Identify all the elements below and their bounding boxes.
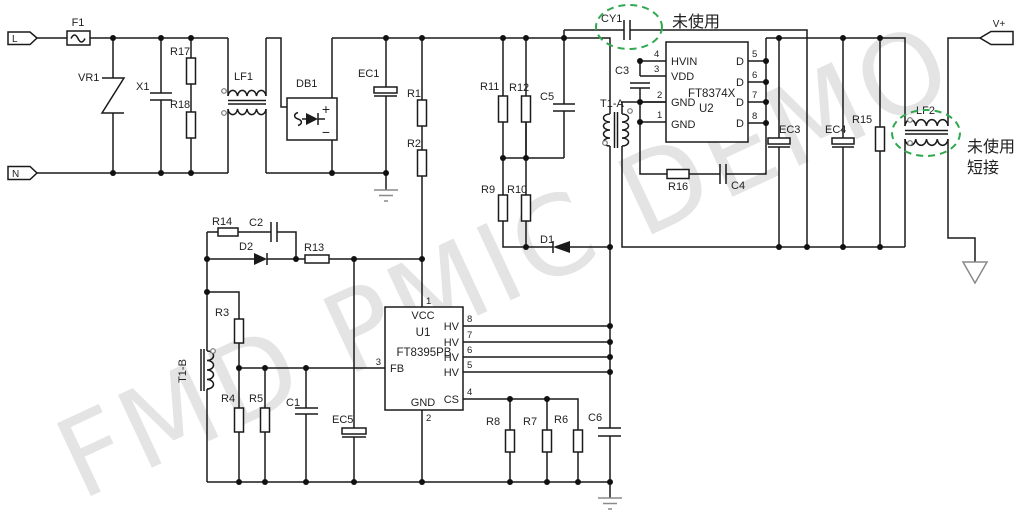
phase-dot-icon xyxy=(628,109,633,114)
resistor-r14: R14 xyxy=(212,216,238,236)
ground-symbol-primary xyxy=(374,190,398,201)
label-c6: C6 xyxy=(588,412,602,424)
label-r5: R5 xyxy=(249,393,263,405)
resistor-r1: R1 xyxy=(407,88,427,126)
u1-pin-wires xyxy=(463,247,610,498)
label-c4: C4 xyxy=(731,180,745,192)
label-c3: C3 xyxy=(615,65,629,77)
u2-pin-num: 1 xyxy=(657,110,662,121)
ground-symbol-output xyxy=(963,262,987,283)
u2-pin-vdd: VDD xyxy=(671,71,694,83)
label-ec5: EC5 xyxy=(332,414,353,426)
schematic-canvas: L N V+ F1 VR1 X1 R17 R18 xyxy=(0,0,1027,524)
diode-d1: D1 xyxy=(540,234,570,253)
cap-c2: C2 xyxy=(249,217,277,242)
cap-c6: C6 xyxy=(588,412,621,436)
label-r3: R3 xyxy=(215,307,229,319)
terminal-n: N xyxy=(8,167,37,181)
label-d1: D1 xyxy=(540,234,554,246)
u1-pin-cs: CS xyxy=(444,394,459,406)
phase-dot-icon xyxy=(222,111,227,116)
choke-lf2: LF2 未使用 短接 xyxy=(892,105,1015,177)
ground-symbol-secondary xyxy=(598,498,622,509)
u2-refdes: U2 xyxy=(699,103,714,115)
u2-pin-num: 4 xyxy=(654,49,659,60)
u1-pin-hv: HV xyxy=(444,337,460,349)
u2-pin-num: 6 xyxy=(752,70,757,81)
label-r14: R14 xyxy=(212,216,232,228)
label-vr1: VR1 xyxy=(78,72,99,84)
phase-dot-icon xyxy=(222,89,227,94)
label-ec1: EC1 xyxy=(358,68,379,80)
winding-t1b: T1-B xyxy=(177,349,215,391)
ic-u2-ft8374x: 4 3 2 1 HVIN VDD GND GND FT8374X U2 D D … xyxy=(654,42,757,142)
label-c1: C1 xyxy=(286,397,300,409)
label-r17: R17 xyxy=(170,46,190,58)
u1-refdes: U1 xyxy=(416,327,431,339)
label-db1: DB1 xyxy=(296,78,317,90)
cy1-highlight-ellipse xyxy=(596,5,662,49)
u1-pin-hv: HV xyxy=(444,321,460,333)
phase-dot-icon xyxy=(211,349,216,354)
rectified-rail-wires xyxy=(332,30,610,259)
label-r10: R10 xyxy=(507,184,527,196)
cap-ec4: EC4 xyxy=(825,124,854,147)
resistor-r2: R2 xyxy=(407,138,427,176)
note-cy1-unused: 未使用 xyxy=(672,13,720,31)
u1-pin-num: 7 xyxy=(467,330,472,341)
label-r9: R9 xyxy=(481,184,495,196)
label-r8: R8 xyxy=(486,416,500,428)
label-t1a: T1-A xyxy=(600,98,625,110)
cap-ec5: EC5 xyxy=(332,414,366,437)
output-rail-wires xyxy=(766,38,980,262)
phase-dot-icon xyxy=(603,141,608,146)
capacitor-x1: X1 xyxy=(136,81,172,100)
diode-d2: D2 xyxy=(239,241,267,265)
ic-u1-ft8395pb: VCC U1 FT8395PB FB GND CS HV HV HV HV 1 … xyxy=(376,296,473,424)
u2-pin-hvin: HVIN xyxy=(671,56,697,68)
u2-pin-d: D xyxy=(736,77,744,89)
cap-ec1: EC1 xyxy=(358,68,397,96)
db1-minus-sign: − xyxy=(322,124,330,140)
u1-pin-num: 1 xyxy=(426,296,431,307)
u2-pin-num: 2 xyxy=(657,90,662,101)
t1a-secondary-wires xyxy=(622,38,905,247)
cap-ec3: EC3 xyxy=(768,124,800,147)
u2-pin-d: D xyxy=(736,118,744,130)
label-r15: R15 xyxy=(852,114,872,126)
label-r4: R4 xyxy=(221,393,235,405)
transformer-t1a: T1-A xyxy=(600,98,632,148)
label-ec3: EC3 xyxy=(779,124,800,136)
bridge-db1: + − DB1 xyxy=(287,78,337,140)
terminal-n-label: N xyxy=(12,169,19,180)
phase-dot-icon xyxy=(908,118,913,123)
u1-pin-fb: FB xyxy=(390,363,404,375)
terminal-l: L xyxy=(8,32,37,45)
label-r16: R16 xyxy=(668,181,688,193)
terminal-vplus-label: V+ xyxy=(993,19,1006,30)
label-x1: X1 xyxy=(136,81,149,93)
resistor-r10: R10 xyxy=(507,184,531,221)
label-r6: R6 xyxy=(554,414,568,426)
label-lf1: LF1 xyxy=(234,71,253,83)
terminal-vplus: V+ xyxy=(980,19,1013,45)
u1-pin-num: 2 xyxy=(426,413,431,424)
u2-pin-num: 8 xyxy=(752,111,757,122)
u2-pin-num: 7 xyxy=(752,90,757,101)
resistor-r13: R13 xyxy=(304,242,329,263)
label-r7: R7 xyxy=(523,416,537,428)
phase-dot-icon xyxy=(908,141,913,146)
u1-pin-num: 4 xyxy=(467,387,472,398)
label-r11: R11 xyxy=(480,81,499,93)
u1-pin-gnd: GND xyxy=(411,397,436,409)
cap-c1: C1 xyxy=(286,397,318,414)
u2-pin-num: 3 xyxy=(654,64,659,75)
u1-pin-hv: HV xyxy=(444,367,460,379)
cap-c4: C4 xyxy=(720,164,745,192)
u1-pin-num: 3 xyxy=(376,357,381,368)
cap-c5: C5 xyxy=(540,91,575,111)
db1-plus-sign: + xyxy=(322,101,330,117)
u2-pin-d: D xyxy=(736,56,744,68)
note-lf2-unused: 未使用 xyxy=(967,138,1015,156)
u1-pin-num: 5 xyxy=(467,360,472,371)
u1-pin-num: 8 xyxy=(467,314,472,325)
label-cy1: CY1 xyxy=(601,13,622,25)
label-ec4: EC4 xyxy=(825,124,846,136)
u1-pin-hv: HV xyxy=(444,352,460,364)
schematic-page: FMD PMIC DEMO xyxy=(0,0,1027,524)
label-c5: C5 xyxy=(540,91,554,103)
terminal-l-label: L xyxy=(12,34,18,45)
label-r2: R2 xyxy=(407,138,421,150)
label-r12: R12 xyxy=(509,82,529,94)
label-r18: R18 xyxy=(170,99,190,111)
label-r1: R1 xyxy=(407,88,421,100)
label-c2: C2 xyxy=(249,217,263,229)
label-r13: R13 xyxy=(304,242,324,254)
note-lf2-short: 短接 xyxy=(967,159,999,177)
u2-pin-num: 5 xyxy=(752,49,757,60)
u2-pin-d: D xyxy=(736,97,744,109)
u2-part-number: FT8374X xyxy=(688,88,736,100)
resistor-r16: R16 xyxy=(667,170,689,194)
resistor-r5: R5 xyxy=(249,393,270,432)
label-t1b: T1-B xyxy=(177,359,189,383)
u1-pin-vcc: VCC xyxy=(411,310,434,322)
u1-pin-num: 6 xyxy=(467,345,472,356)
resistor-r12: R12 xyxy=(509,82,531,122)
label-d2: D2 xyxy=(239,241,253,253)
label-f1: F1 xyxy=(72,17,85,29)
varistor-vr1: VR1 xyxy=(78,72,124,113)
u2-pin-gnd1: GND xyxy=(671,119,696,131)
fuse-f1: F1 xyxy=(67,17,90,45)
resistor-r4: R4 xyxy=(221,393,244,432)
